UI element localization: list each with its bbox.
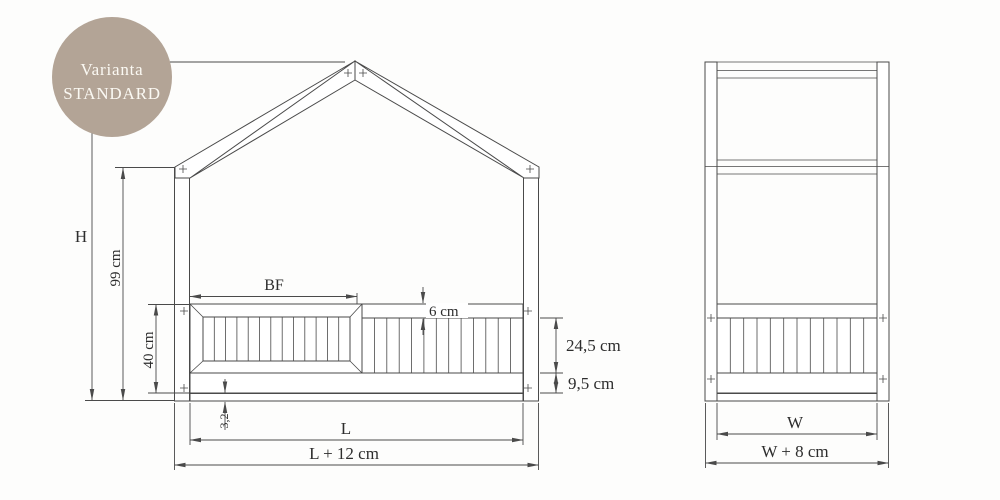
dim-label-outer-width: W + 8 cm — [761, 442, 828, 461]
side-dimensions: W W + 8 cm — [706, 403, 889, 468]
side-view — [705, 62, 889, 401]
dim-label-barrier-width: BF — [264, 277, 284, 294]
dim-label-inner-length: L — [341, 419, 351, 438]
front-slat-section — [362, 318, 523, 373]
barrier-panel-frame — [190, 304, 362, 373]
dim-label-bottom-rail: 9,5 cm — [568, 374, 614, 393]
side-base-board — [717, 394, 877, 402]
front-left-post — [175, 168, 190, 402]
h-extension-lines — [85, 168, 174, 401]
dim-label-slat-section: 24,5 cm — [566, 336, 621, 355]
dim-label-outer-length: L + 12 cm — [309, 444, 379, 463]
side-bottom-rail — [717, 373, 877, 393]
front-right-post — [524, 168, 539, 402]
side-ridge-beam — [705, 62, 889, 78]
side-top-rail — [717, 304, 877, 318]
dim-label-bed-side-height: 40 cm — [141, 331, 157, 368]
right-extension-lines — [540, 318, 563, 393]
roof-beam-right — [355, 61, 539, 178]
dim-label-top-rail: 6 cm — [429, 304, 459, 320]
front-base-board — [190, 394, 523, 402]
dim-label-inner-width: W — [787, 413, 804, 432]
side-eave-rail — [705, 160, 889, 174]
side-left-post — [705, 62, 717, 401]
dim-label-wall-height: 99 cm — [108, 249, 124, 286]
dim-label-base-board: 3,2 — [217, 414, 231, 429]
inner-length-extension-lines — [190, 403, 523, 445]
dim-label-total-height: H — [75, 227, 87, 246]
badge-line1: Varianta — [80, 60, 143, 79]
badge-line2: STANDARD — [63, 84, 161, 103]
front-bottom-rail — [190, 373, 523, 393]
technical-drawing: H 99 cm 40 cm BF 6 cm 24,5 cm 9,5 cm 3,2… — [0, 0, 1000, 500]
variant-badge: Varianta STANDARD — [52, 17, 172, 137]
side-right-post — [877, 62, 889, 401]
roof-beam-left — [175, 61, 355, 178]
